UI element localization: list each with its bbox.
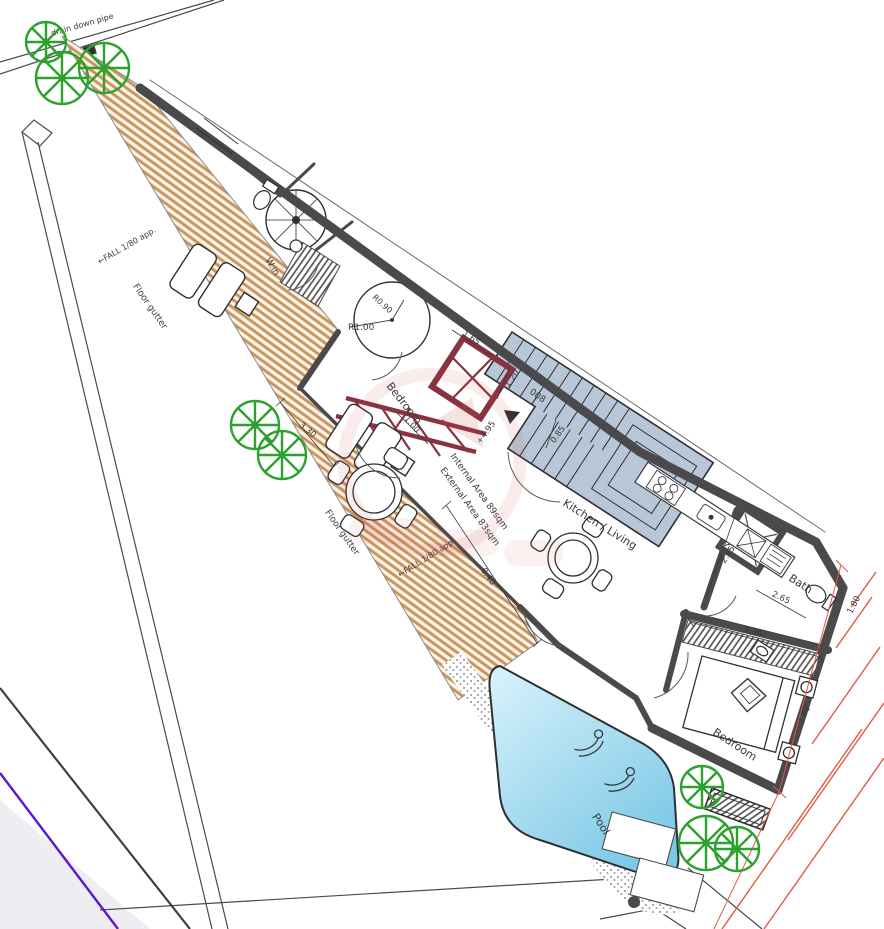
tree-icon	[79, 43, 129, 93]
floor-plan-svg: drain down pipe ←FALL 1/80 app. Floor gu…	[0, 0, 884, 929]
tree-icon	[681, 766, 723, 808]
dim-r100: R1.00	[348, 323, 375, 333]
nightstand-2	[778, 742, 800, 764]
street-shading	[0, 800, 150, 929]
label-fall-upper: ←FALL 1/80 app.	[96, 226, 157, 267]
drain-line-1	[0, 0, 214, 62]
bedroom-left-stub	[666, 612, 686, 690]
tree-icon	[715, 827, 759, 871]
outdoor-bench	[704, 788, 770, 830]
tree-icon	[258, 431, 306, 479]
tree-icon	[26, 22, 66, 62]
sink-top	[290, 240, 302, 252]
boundary-hook	[22, 120, 52, 146]
dim-bedroom-length: 3.90	[795, 704, 813, 725]
label-floor-gutter-upper: Floor gutter	[130, 282, 169, 331]
tree-icon	[231, 401, 279, 449]
floor-plan-page: drain down pipe ←FALL 1/80 app. Floor gu…	[0, 0, 884, 929]
bottom-site-line	[100, 877, 654, 910]
nightstand-1	[795, 676, 817, 698]
walkway-drain	[628, 896, 640, 908]
label-drain-down-pipe: drain down pipe	[50, 11, 115, 37]
